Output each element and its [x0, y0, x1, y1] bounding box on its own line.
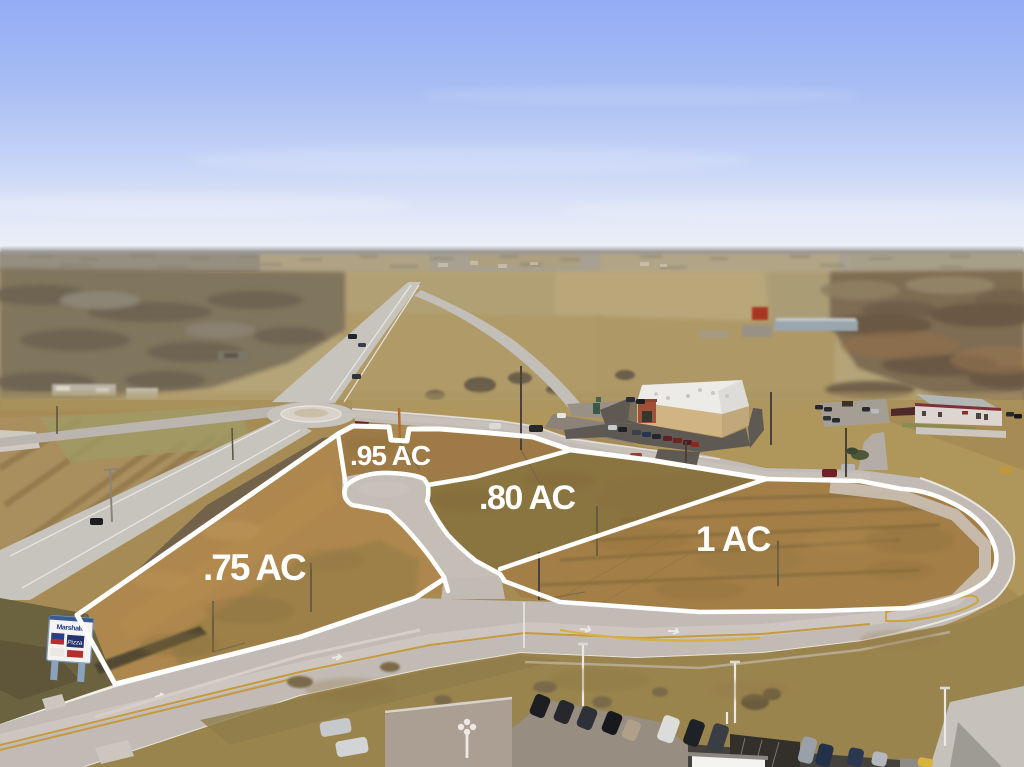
svg-text:1 AC: 1 AC: [696, 520, 771, 559]
svg-text:.95 AC: .95 AC: [350, 440, 431, 471]
svg-text:.80 AC: .80 AC: [479, 479, 576, 517]
svg-text:Pizza: Pizza: [67, 640, 83, 647]
svg-text:.75 AC: .75 AC: [203, 547, 306, 588]
